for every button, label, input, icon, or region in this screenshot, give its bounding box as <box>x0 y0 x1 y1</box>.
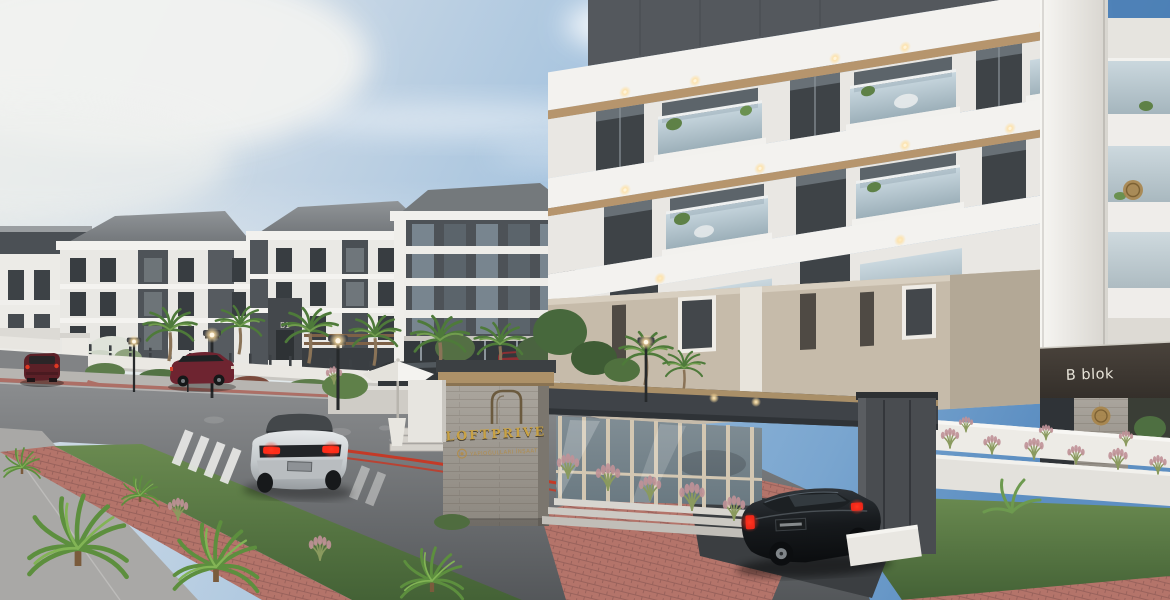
entrance-emblem-icon <box>1092 407 1111 426</box>
gate-sign-pillar: LOFTPRIVE YAPIOĞULLARI İNŞAAT <box>434 360 556 530</box>
scene-svg: B1 <box>0 0 1170 600</box>
corner-column <box>1040 0 1108 352</box>
right-face <box>1108 18 1170 352</box>
gate-glass-lobby <box>556 416 762 508</box>
maroon-car-far-left <box>20 353 64 387</box>
building-b-label: B blok <box>1066 366 1115 384</box>
render-canvas: B1 <box>0 0 1170 600</box>
facade-emblem-icon <box>1123 180 1143 200</box>
